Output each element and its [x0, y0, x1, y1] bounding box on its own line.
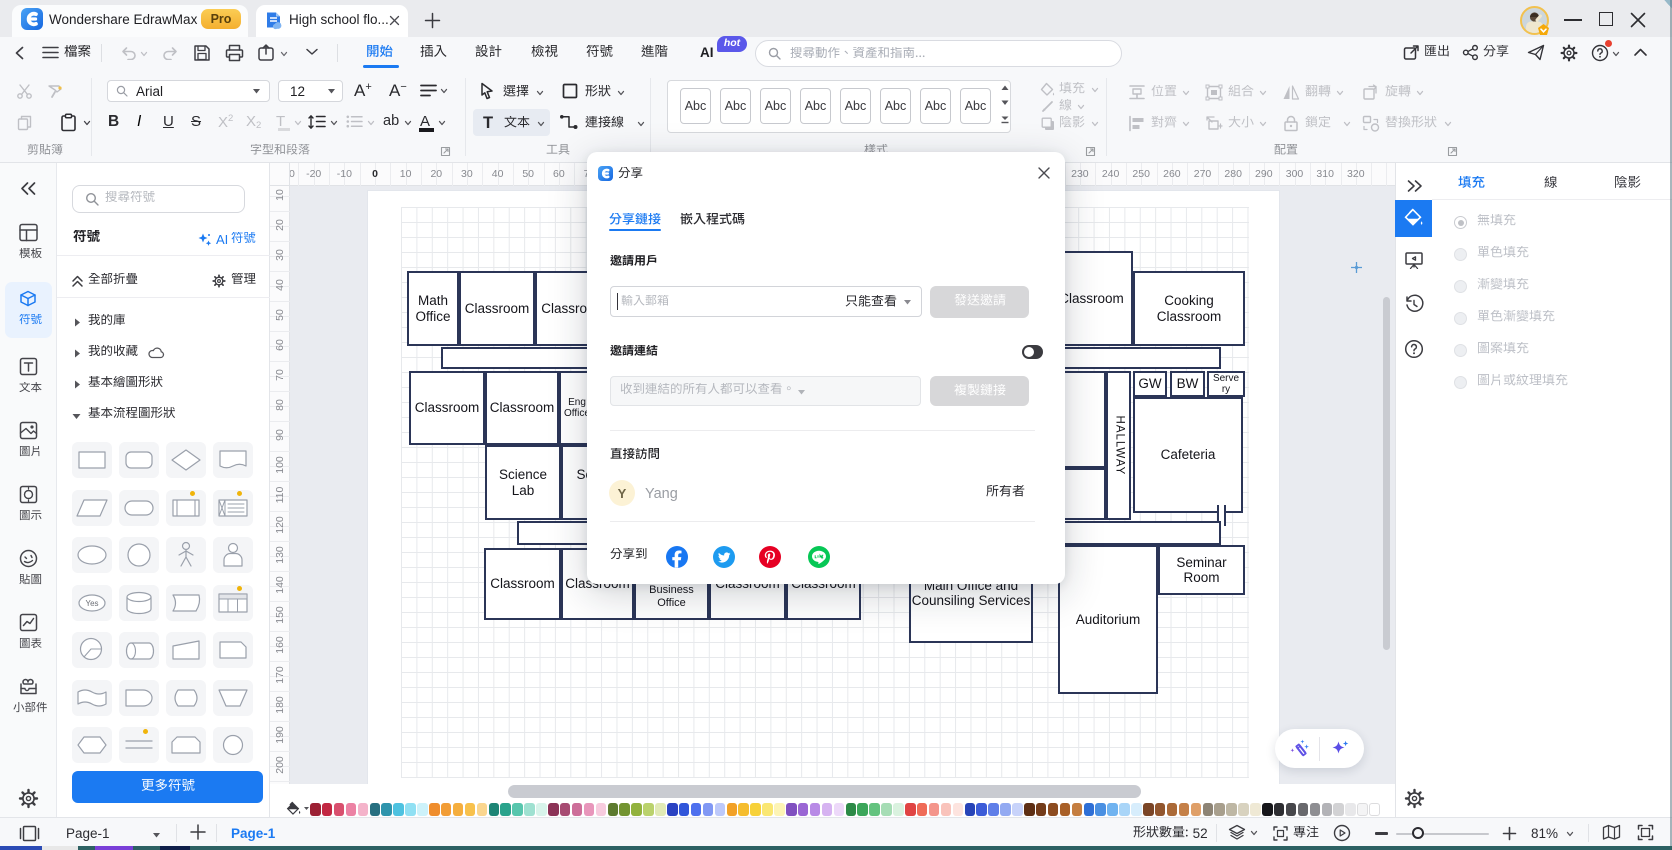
svg-text:Yes: Yes — [85, 599, 98, 608]
